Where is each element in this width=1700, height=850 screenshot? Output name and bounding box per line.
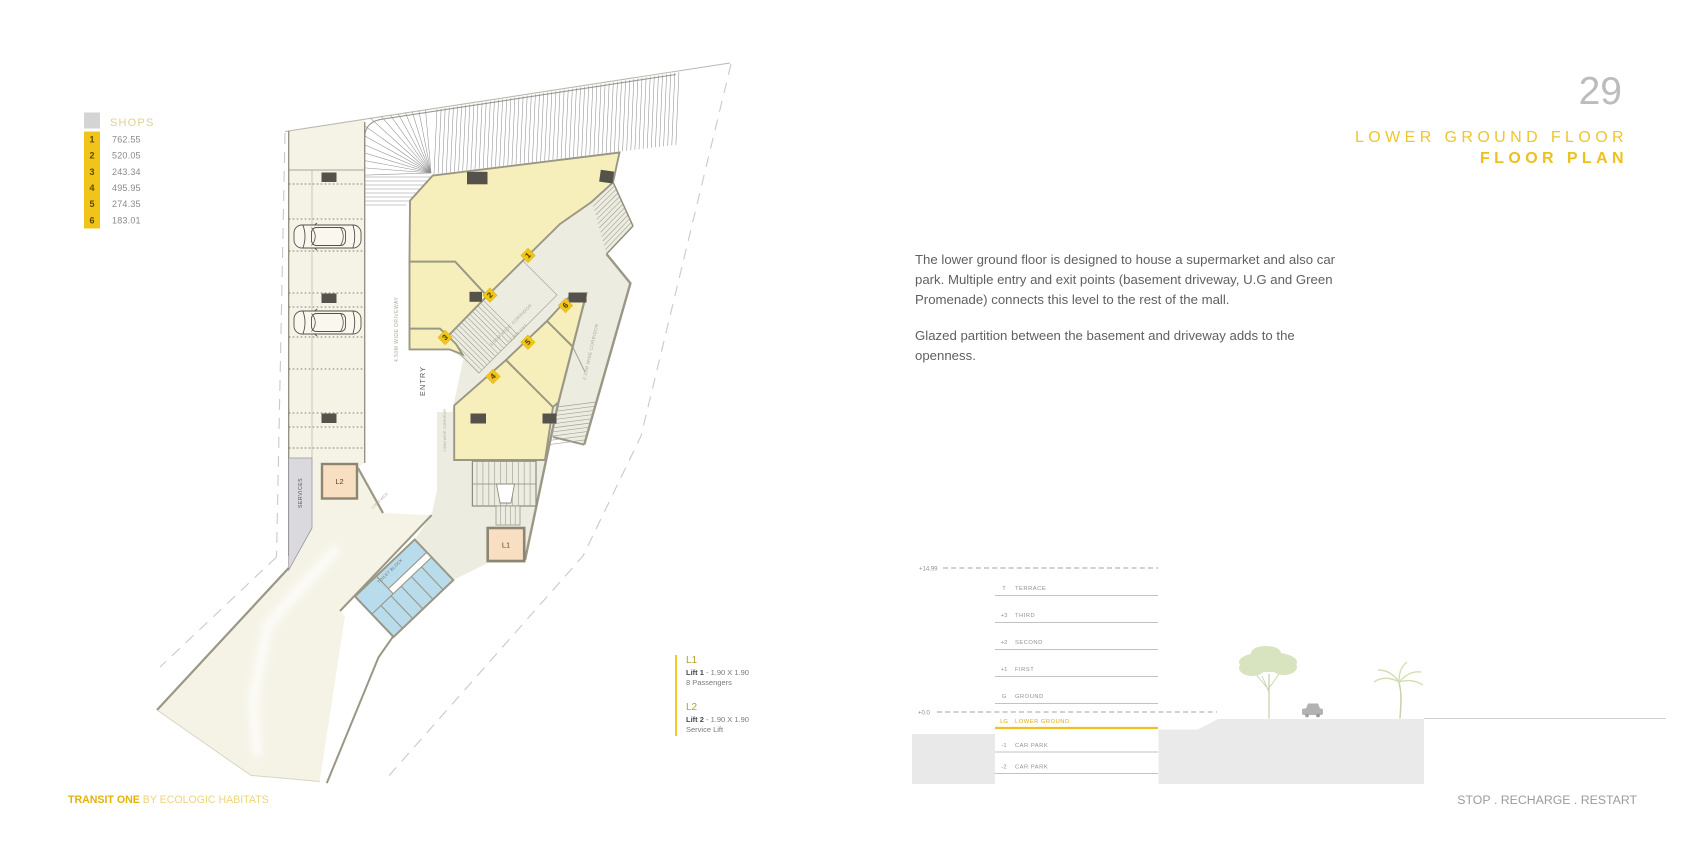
svg-text:-1: -1: [1001, 743, 1006, 749]
svg-text:TRANSIT ONE BY ECOLOGIC HABITA: TRANSIT ONE BY ECOLOGIC HABITATS: [68, 794, 269, 806]
svg-text:+3: +3: [1001, 613, 1008, 619]
svg-text:THIRD: THIRD: [1015, 613, 1035, 619]
svg-text:LG: LG: [1000, 719, 1008, 725]
svg-text:CAR PARK: CAR PARK: [1015, 765, 1048, 771]
svg-text:243.34: 243.34: [112, 167, 141, 177]
svg-text:+2: +2: [1001, 640, 1008, 646]
svg-text:L1: L1: [502, 541, 510, 550]
svg-text:L1: L1: [686, 655, 698, 666]
svg-text:park. Multiple entry and exit: park. Multiple entry and exit points (ba…: [915, 272, 1333, 287]
svg-text:SERVICES: SERVICES: [298, 478, 304, 508]
svg-text:520.05: 520.05: [112, 151, 141, 161]
svg-text:Glazed partition between the b: Glazed partition between the basement an…: [915, 328, 1295, 343]
svg-text:1.50M WIDE CORRIDOR: 1.50M WIDE CORRIDOR: [443, 408, 447, 452]
svg-text:ENTRY: ENTRY: [418, 366, 427, 396]
svg-text:4.50M WIDE DRIVEWAY: 4.50M WIDE DRIVEWAY: [394, 296, 400, 362]
svg-text:2: 2: [89, 151, 94, 161]
svg-text:183.01: 183.01: [112, 215, 141, 225]
svg-text:274.35: 274.35: [112, 199, 141, 209]
svg-text:STOP . RECHARGE . RESTART: STOP . RECHARGE . RESTART: [1457, 793, 1637, 807]
svg-text:29: 29: [1579, 70, 1622, 113]
svg-text:+0.0: +0.0: [918, 711, 931, 717]
svg-text:8 Passengers: 8 Passengers: [686, 678, 732, 687]
svg-text:L2: L2: [335, 477, 343, 486]
svg-text:SHOPS: SHOPS: [110, 117, 155, 129]
svg-text:T: T: [1002, 586, 1006, 592]
svg-text:TERRACE: TERRACE: [1015, 586, 1046, 592]
svg-text:SECOND: SECOND: [1015, 640, 1043, 646]
svg-text:4: 4: [89, 183, 94, 193]
svg-text:762.55: 762.55: [112, 135, 141, 145]
svg-text:LOWER GROUND: LOWER GROUND: [1015, 719, 1070, 725]
svg-text:+14.99: +14.99: [919, 567, 938, 573]
svg-text:CAR PARK: CAR PARK: [1015, 743, 1048, 749]
svg-text:openness.: openness.: [915, 348, 976, 363]
svg-text:The lower ground floor is desi: The lower ground floor is designed to ho…: [915, 252, 1336, 267]
svg-text:L2: L2: [686, 702, 698, 713]
svg-text:Lift 2 - 1.90 X 1.90: Lift 2 - 1.90 X 1.90: [686, 715, 749, 724]
svg-text:3: 3: [89, 167, 94, 177]
svg-text:5: 5: [89, 199, 94, 209]
svg-text:-2: -2: [1001, 765, 1006, 771]
svg-text:1: 1: [89, 135, 94, 145]
svg-text:LOWER GROUND FLOOR: LOWER GROUND FLOOR: [1355, 129, 1628, 146]
svg-text:Lift 1 - 1.90 X 1.90: Lift 1 - 1.90 X 1.90: [686, 668, 749, 677]
svg-text:GROUND: GROUND: [1015, 694, 1044, 700]
svg-text:6: 6: [89, 215, 94, 225]
svg-text:G: G: [1002, 694, 1007, 700]
svg-text:+1: +1: [1001, 667, 1008, 673]
svg-text:FLOOR PLAN: FLOOR PLAN: [1480, 150, 1628, 167]
svg-text:FIRST: FIRST: [1015, 667, 1034, 673]
svg-text:495.95: 495.95: [112, 183, 141, 193]
svg-text:Service Lift: Service Lift: [686, 725, 724, 734]
svg-text:Promenade) connects this leve: Promenade) connects this level to the re…: [915, 292, 1229, 307]
